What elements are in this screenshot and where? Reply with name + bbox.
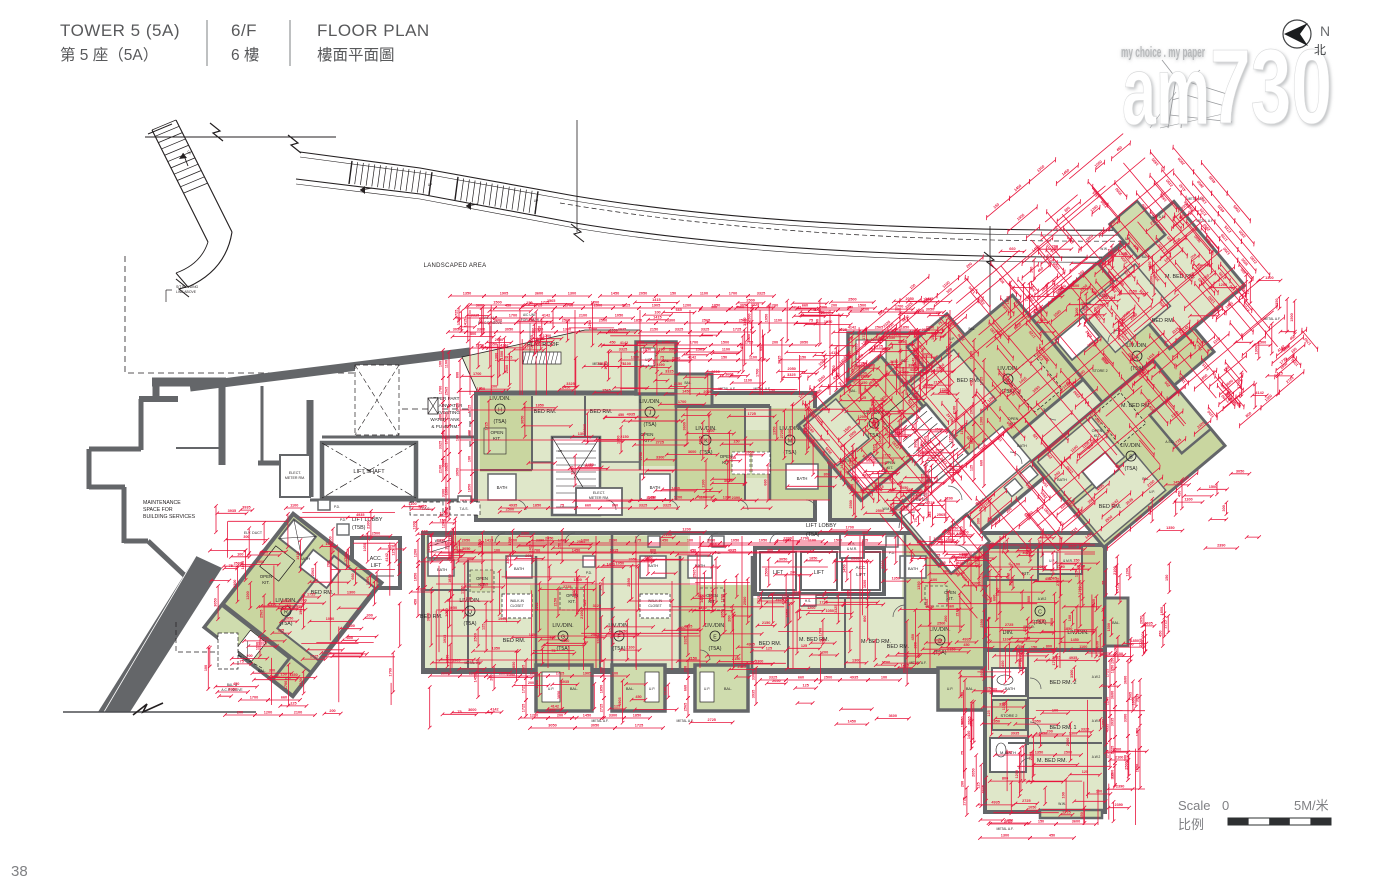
svg-text:1200: 1200	[1111, 770, 1115, 778]
svg-text:2390: 2390	[609, 539, 617, 543]
svg-text:150: 150	[721, 356, 727, 360]
svg-text:3600: 3600	[914, 439, 918, 447]
svg-text:450: 450	[911, 634, 915, 640]
svg-text:3935: 3935	[1111, 718, 1115, 726]
svg-text:75: 75	[936, 554, 940, 558]
svg-text:3325: 3325	[663, 504, 671, 508]
svg-text:2725: 2725	[1106, 750, 1110, 758]
svg-text:200: 200	[491, 385, 497, 389]
svg-text:2100: 2100	[672, 357, 680, 361]
svg-text:2565: 2565	[583, 424, 587, 432]
svg-text:1450: 1450	[611, 292, 619, 296]
svg-text:1905: 1905	[894, 430, 902, 434]
svg-text:3300: 3300	[521, 532, 529, 536]
svg-text:4142: 4142	[793, 306, 801, 310]
svg-text:A.W.2: A.W.2	[1092, 755, 1101, 759]
svg-text:1415: 1415	[653, 315, 661, 319]
svg-text:BATH: BATH	[497, 485, 508, 490]
svg-text:1850: 1850	[414, 573, 418, 581]
svg-text:300: 300	[821, 306, 827, 310]
svg-text:1350: 1350	[1035, 751, 1043, 755]
svg-text:800: 800	[467, 557, 473, 561]
svg-text:LIV./DIN.: LIV./DIN.	[552, 623, 573, 629]
svg-text:1850: 1850	[643, 348, 651, 352]
svg-text:3600: 3600	[476, 304, 484, 308]
svg-text:1700: 1700	[639, 452, 643, 460]
svg-text:75: 75	[1025, 297, 1029, 301]
svg-text:1700: 1700	[846, 526, 854, 530]
svg-text:1500: 1500	[256, 560, 264, 564]
svg-text:1050: 1050	[442, 431, 446, 439]
svg-text:1050: 1050	[759, 539, 767, 543]
svg-text:1200: 1200	[959, 552, 967, 556]
svg-text:1200: 1200	[770, 304, 778, 308]
svg-text:2150: 2150	[554, 598, 558, 606]
svg-text:1500: 1500	[834, 539, 842, 543]
svg-text:150: 150	[800, 355, 806, 359]
svg-text:2725: 2725	[563, 585, 571, 589]
svg-text:2500: 2500	[505, 365, 509, 373]
svg-text:1300: 1300	[1078, 582, 1082, 590]
svg-text:100: 100	[878, 406, 882, 412]
svg-text:3050: 3050	[1236, 469, 1244, 473]
svg-text:T.A.S.: T.A.S.	[459, 507, 468, 511]
svg-text:2500: 2500	[1003, 542, 1007, 550]
svg-text:800: 800	[456, 372, 460, 378]
svg-text:2100: 2100	[1075, 308, 1079, 316]
svg-text:2565: 2565	[925, 599, 929, 607]
svg-text:5M/米: 5M/米	[1294, 798, 1329, 813]
svg-text:1350: 1350	[1275, 298, 1279, 306]
svg-text:660: 660	[907, 488, 913, 492]
svg-text:BATH: BATH	[908, 566, 918, 571]
svg-text:1850: 1850	[535, 403, 543, 407]
svg-text:1050: 1050	[1111, 665, 1115, 673]
svg-text:75: 75	[560, 504, 564, 508]
svg-text:450: 450	[609, 341, 615, 345]
svg-text:2390: 2390	[881, 560, 885, 568]
svg-text:1300: 1300	[980, 417, 984, 425]
svg-text:1700: 1700	[250, 696, 258, 700]
svg-text:1200: 1200	[588, 320, 592, 328]
svg-text:1350: 1350	[1166, 526, 1174, 530]
svg-text:UP: UP	[534, 199, 538, 203]
svg-text:4142: 4142	[620, 341, 628, 345]
svg-text:2565: 2565	[562, 319, 570, 323]
svg-text:2500: 2500	[599, 319, 607, 323]
svg-text:1850: 1850	[512, 662, 516, 670]
svg-text:1200: 1200	[944, 497, 952, 501]
svg-text:3325: 3325	[683, 636, 687, 644]
svg-text:1050: 1050	[440, 512, 448, 516]
svg-text:3935: 3935	[1011, 732, 1019, 736]
svg-text:第 5 座（5A）: 第 5 座（5A）	[60, 46, 158, 64]
svg-text:3050: 3050	[934, 638, 942, 642]
svg-text:1350: 1350	[328, 536, 332, 544]
svg-text:METER RM.: METER RM.	[285, 476, 305, 480]
svg-text:H: H	[498, 408, 502, 414]
svg-text:800: 800	[612, 504, 618, 508]
svg-text:300: 300	[243, 535, 249, 539]
svg-text:3050: 3050	[520, 416, 524, 424]
svg-text:3600: 3600	[889, 714, 897, 718]
svg-text:3935: 3935	[922, 328, 930, 332]
svg-text:3600: 3600	[1124, 676, 1128, 684]
svg-text:1100: 1100	[290, 504, 298, 508]
svg-text:2050: 2050	[745, 450, 753, 454]
svg-text:2150: 2150	[732, 657, 740, 661]
svg-text:2500: 2500	[234, 562, 242, 566]
svg-text:3300: 3300	[1070, 670, 1074, 678]
svg-text:4935: 4935	[850, 676, 858, 680]
svg-text:1700: 1700	[755, 369, 759, 377]
svg-text:1500: 1500	[500, 351, 504, 359]
svg-text:2725: 2725	[600, 704, 604, 712]
svg-text:2725: 2725	[1062, 810, 1070, 814]
svg-text:660: 660	[585, 504, 591, 508]
svg-text:1100: 1100	[700, 292, 708, 296]
svg-text:4935: 4935	[561, 680, 569, 684]
svg-text:3050: 3050	[1018, 659, 1022, 667]
svg-text:LIV./DIN.: LIV./DIN.	[639, 399, 660, 405]
svg-text:300: 300	[468, 430, 472, 436]
svg-text:150: 150	[1031, 645, 1037, 649]
svg-text:4935: 4935	[684, 625, 692, 629]
svg-text:3300: 3300	[999, 703, 1007, 707]
svg-text:1350: 1350	[772, 426, 776, 434]
svg-text:2500: 2500	[1258, 341, 1266, 345]
svg-text:800: 800	[824, 472, 830, 476]
svg-text:1850: 1850	[448, 574, 452, 582]
svg-text:2565: 2565	[260, 610, 264, 618]
svg-text:& M.R.: & M.R.	[847, 547, 857, 551]
svg-text:3600: 3600	[1072, 820, 1080, 824]
svg-text:1050: 1050	[530, 335, 534, 343]
svg-text:1450: 1450	[967, 731, 971, 739]
svg-text:KIT.: KIT.	[262, 580, 270, 585]
svg-text:1300: 1300	[1265, 276, 1273, 280]
svg-text:125: 125	[803, 684, 809, 688]
svg-text:125: 125	[970, 465, 974, 471]
svg-text:METER RM.: METER RM.	[589, 496, 609, 500]
svg-text:1300: 1300	[1069, 732, 1077, 736]
svg-text:1700: 1700	[543, 334, 551, 338]
svg-text:3050: 3050	[800, 341, 808, 345]
svg-text:3935: 3935	[504, 356, 512, 360]
svg-text:3600: 3600	[441, 672, 449, 676]
svg-text:2500: 2500	[876, 509, 884, 513]
svg-text:450: 450	[1178, 491, 1182, 497]
svg-text:1850: 1850	[533, 504, 541, 508]
svg-text:2100: 2100	[366, 520, 370, 528]
svg-text:1200: 1200	[246, 591, 250, 599]
svg-text:2500: 2500	[736, 306, 744, 310]
svg-text:P.D.: P.D.	[334, 505, 340, 509]
svg-text:W.W.: W.W.	[1058, 802, 1066, 806]
svg-text:3600: 3600	[683, 422, 687, 430]
svg-text:1725: 1725	[635, 724, 643, 728]
svg-text:1300: 1300	[1001, 834, 1009, 838]
svg-text:BAL.: BAL.	[1112, 621, 1120, 625]
svg-text:4142: 4142	[949, 468, 957, 472]
svg-text:KIT.: KIT.	[946, 596, 953, 601]
svg-text:1200: 1200	[1106, 697, 1110, 705]
svg-text:1415: 1415	[652, 298, 660, 302]
svg-text:1700: 1700	[678, 400, 686, 404]
svg-text:200: 200	[329, 709, 335, 713]
svg-text:2050: 2050	[927, 456, 935, 460]
svg-text:300: 300	[914, 642, 918, 648]
svg-text:125: 125	[1023, 625, 1027, 631]
svg-text:1905: 1905	[961, 719, 965, 727]
svg-text:125: 125	[290, 701, 296, 705]
svg-text:1100: 1100	[256, 642, 260, 650]
svg-text:660: 660	[676, 308, 682, 312]
svg-text:2500: 2500	[1066, 738, 1070, 746]
svg-text:UP: UP	[558, 449, 562, 453]
svg-text:100: 100	[456, 435, 460, 441]
svg-text:1725: 1725	[733, 328, 741, 332]
svg-text:1200: 1200	[674, 496, 682, 500]
svg-text:1905: 1905	[618, 697, 622, 705]
svg-text:3050: 3050	[548, 724, 556, 728]
svg-text:150: 150	[861, 371, 867, 375]
svg-text:1450: 1450	[842, 564, 846, 572]
svg-text:3935: 3935	[618, 328, 626, 332]
svg-text:2565: 2565	[311, 568, 315, 576]
svg-text:1200: 1200	[682, 528, 690, 532]
svg-text:300: 300	[367, 614, 373, 618]
svg-text:200: 200	[684, 666, 688, 672]
svg-text:2565: 2565	[851, 557, 859, 561]
svg-text:BED RM.: BED RM.	[887, 644, 909, 650]
svg-text:4935: 4935	[793, 591, 801, 595]
svg-text:200: 200	[528, 681, 534, 685]
svg-text:BATH: BATH	[437, 567, 447, 572]
svg-text:1450: 1450	[682, 389, 690, 393]
svg-text:BED RM.: BED RM.	[503, 638, 525, 644]
svg-text:450: 450	[505, 304, 511, 308]
svg-text:75: 75	[766, 306, 770, 310]
svg-text:2500: 2500	[372, 532, 380, 536]
svg-text:1200: 1200	[264, 711, 272, 715]
svg-text:3935: 3935	[1136, 694, 1140, 702]
svg-text:(T5A): (T5A)	[613, 646, 626, 652]
svg-text:2725: 2725	[656, 441, 664, 445]
svg-text:450: 450	[233, 682, 239, 686]
svg-text:3300: 3300	[667, 319, 675, 323]
svg-text:3050: 3050	[779, 557, 787, 561]
svg-text:1350: 1350	[463, 292, 471, 296]
svg-text:2565: 2565	[547, 299, 555, 303]
svg-text:2050: 2050	[495, 338, 503, 342]
svg-text:2390: 2390	[980, 619, 984, 627]
svg-text:2565: 2565	[937, 513, 945, 517]
svg-text:2100: 2100	[580, 610, 584, 618]
svg-text:3300: 3300	[233, 580, 237, 588]
svg-text:1450: 1450	[848, 720, 856, 724]
svg-text:2390: 2390	[732, 496, 740, 500]
svg-text:BAL.: BAL.	[966, 687, 974, 691]
svg-text:75: 75	[869, 408, 873, 412]
svg-text:1725: 1725	[522, 685, 526, 693]
svg-text:KIT.: KIT.	[643, 438, 651, 443]
svg-text:1350: 1350	[366, 577, 370, 585]
svg-text:1350: 1350	[460, 585, 464, 593]
svg-text:2725: 2725	[916, 309, 924, 313]
svg-text:1415: 1415	[1052, 656, 1060, 660]
svg-text:125: 125	[987, 710, 991, 716]
svg-text:1200: 1200	[1125, 568, 1129, 576]
svg-text:LIFT: LIFT	[814, 570, 824, 576]
svg-text:660: 660	[798, 676, 804, 680]
svg-text:2100: 2100	[1115, 756, 1123, 760]
svg-text:1905: 1905	[652, 304, 660, 308]
svg-text:1100: 1100	[699, 496, 707, 500]
svg-text:2050: 2050	[1032, 720, 1040, 724]
svg-text:150: 150	[526, 301, 532, 305]
svg-text:100: 100	[961, 692, 965, 698]
svg-text:1350: 1350	[927, 475, 931, 483]
svg-text:1050: 1050	[731, 539, 739, 543]
svg-text:3050: 3050	[591, 724, 599, 728]
svg-text:2565: 2565	[445, 387, 449, 395]
svg-text:6/F: 6/F	[231, 21, 257, 40]
svg-text:1450: 1450	[456, 403, 460, 411]
svg-text:1100: 1100	[774, 319, 782, 323]
svg-text:125: 125	[392, 549, 396, 555]
svg-text:2150: 2150	[620, 435, 628, 439]
svg-text:SPACE FOR: SPACE FOR	[143, 507, 173, 513]
svg-text:450: 450	[1080, 812, 1084, 818]
svg-text:(T5A): (T5A)	[280, 621, 293, 627]
svg-text:2565: 2565	[696, 348, 704, 352]
svg-text:LANDSCAPED AREA: LANDSCAPED AREA	[424, 263, 487, 269]
svg-text:1100: 1100	[744, 379, 752, 383]
svg-text:4142: 4142	[697, 594, 705, 598]
svg-text:1100: 1100	[702, 479, 706, 487]
svg-text:(T5A): (T5A)	[1125, 466, 1138, 472]
svg-text:100: 100	[1062, 792, 1066, 798]
svg-text:2565: 2565	[480, 583, 488, 587]
svg-text:3050: 3050	[462, 547, 470, 551]
svg-text:3050: 3050	[214, 598, 218, 606]
svg-text:1050: 1050	[1028, 806, 1036, 810]
svg-text:1100: 1100	[532, 328, 536, 336]
svg-text:150: 150	[1038, 820, 1044, 824]
svg-text:OPEN: OPEN	[260, 574, 272, 579]
svg-text:4935: 4935	[962, 638, 970, 642]
svg-text:200: 200	[246, 654, 252, 658]
svg-text:2390: 2390	[1038, 565, 1046, 569]
svg-text:3325: 3325	[921, 474, 925, 482]
svg-text:1050: 1050	[765, 314, 769, 322]
svg-text:MAINTENANCE: MAINTENANCE	[143, 500, 181, 506]
svg-text:660: 660	[351, 573, 355, 579]
svg-text:450: 450	[970, 380, 974, 386]
svg-text:450: 450	[618, 413, 624, 417]
svg-text:1700: 1700	[690, 341, 698, 345]
svg-text:1700: 1700	[565, 304, 573, 308]
svg-text:LIFT: LIFT	[856, 572, 866, 577]
svg-text:1700: 1700	[1237, 380, 1241, 388]
svg-text:BATH: BATH	[1017, 444, 1027, 448]
svg-text:75: 75	[551, 649, 555, 653]
svg-text:1725: 1725	[556, 672, 564, 676]
svg-text:1450: 1450	[562, 385, 570, 389]
svg-text:2100: 2100	[1115, 652, 1123, 656]
svg-text:125: 125	[1277, 371, 1283, 375]
svg-text:樓面平面圖: 樓面平面圖	[317, 46, 395, 64]
svg-text:OPEN: OPEN	[490, 430, 503, 435]
svg-text:2565: 2565	[693, 569, 697, 577]
svg-text:300: 300	[1124, 755, 1128, 761]
svg-text:R: R	[284, 610, 288, 616]
svg-text:1200: 1200	[807, 606, 815, 610]
svg-text:1300: 1300	[347, 590, 355, 594]
svg-text:(T5A): (T5A)	[557, 646, 570, 652]
svg-text:3325: 3325	[665, 370, 673, 374]
svg-text:(T5A): (T5A)	[784, 450, 797, 456]
svg-text:2390: 2390	[1150, 276, 1154, 284]
svg-text:2500: 2500	[935, 427, 943, 431]
svg-text:1050: 1050	[609, 328, 617, 332]
svg-text:100: 100	[439, 414, 443, 420]
svg-text:4142: 4142	[385, 553, 389, 561]
svg-text:BED RM.: BED RM.	[957, 378, 979, 384]
svg-text:2150: 2150	[762, 621, 770, 625]
svg-text:1725: 1725	[525, 345, 533, 349]
svg-text:2390: 2390	[783, 536, 791, 540]
svg-text:P.D.: P.D.	[586, 571, 592, 575]
svg-text:FLOOR PLAN: FLOOR PLAN	[317, 21, 430, 40]
svg-text:2500: 2500	[474, 633, 478, 641]
svg-text:2150: 2150	[674, 382, 682, 386]
svg-text:(T5B): (T5B)	[352, 525, 366, 531]
svg-text:LIV./DIN.: LIV./DIN.	[608, 623, 629, 629]
svg-text:1500: 1500	[535, 680, 539, 688]
svg-text:2500: 2500	[920, 451, 928, 455]
svg-text:2725: 2725	[926, 501, 934, 505]
svg-text:3300: 3300	[506, 555, 510, 563]
svg-text:75: 75	[914, 518, 918, 522]
svg-text:2500: 2500	[824, 676, 832, 680]
svg-text:3325: 3325	[1081, 727, 1089, 731]
svg-text:75: 75	[240, 659, 244, 663]
svg-text:1050: 1050	[285, 617, 293, 621]
svg-text:ACC.: ACC.	[856, 565, 867, 570]
svg-text:2500: 2500	[764, 568, 768, 576]
svg-text:660: 660	[1009, 247, 1015, 251]
svg-text:3325: 3325	[639, 504, 647, 508]
svg-text:3300: 3300	[609, 714, 617, 718]
svg-text:300: 300	[711, 306, 717, 310]
svg-text:1700: 1700	[818, 628, 822, 636]
svg-text:1350: 1350	[723, 496, 731, 500]
svg-text:BATH: BATH	[648, 563, 658, 568]
svg-text:300: 300	[976, 518, 980, 524]
svg-text:2500: 2500	[746, 298, 754, 302]
svg-text:2390: 2390	[1114, 803, 1122, 807]
svg-text:1500: 1500	[721, 341, 729, 345]
svg-text:ELECT.: ELECT.	[289, 471, 301, 475]
svg-text:2565: 2565	[602, 388, 610, 392]
svg-text:1450: 1450	[785, 609, 789, 617]
svg-text:1350: 1350	[887, 336, 895, 340]
svg-text:BAL.: BAL.	[570, 687, 578, 691]
svg-text:2050: 2050	[787, 367, 795, 371]
svg-text:LINE ABOVE: LINE ABOVE	[176, 290, 197, 294]
